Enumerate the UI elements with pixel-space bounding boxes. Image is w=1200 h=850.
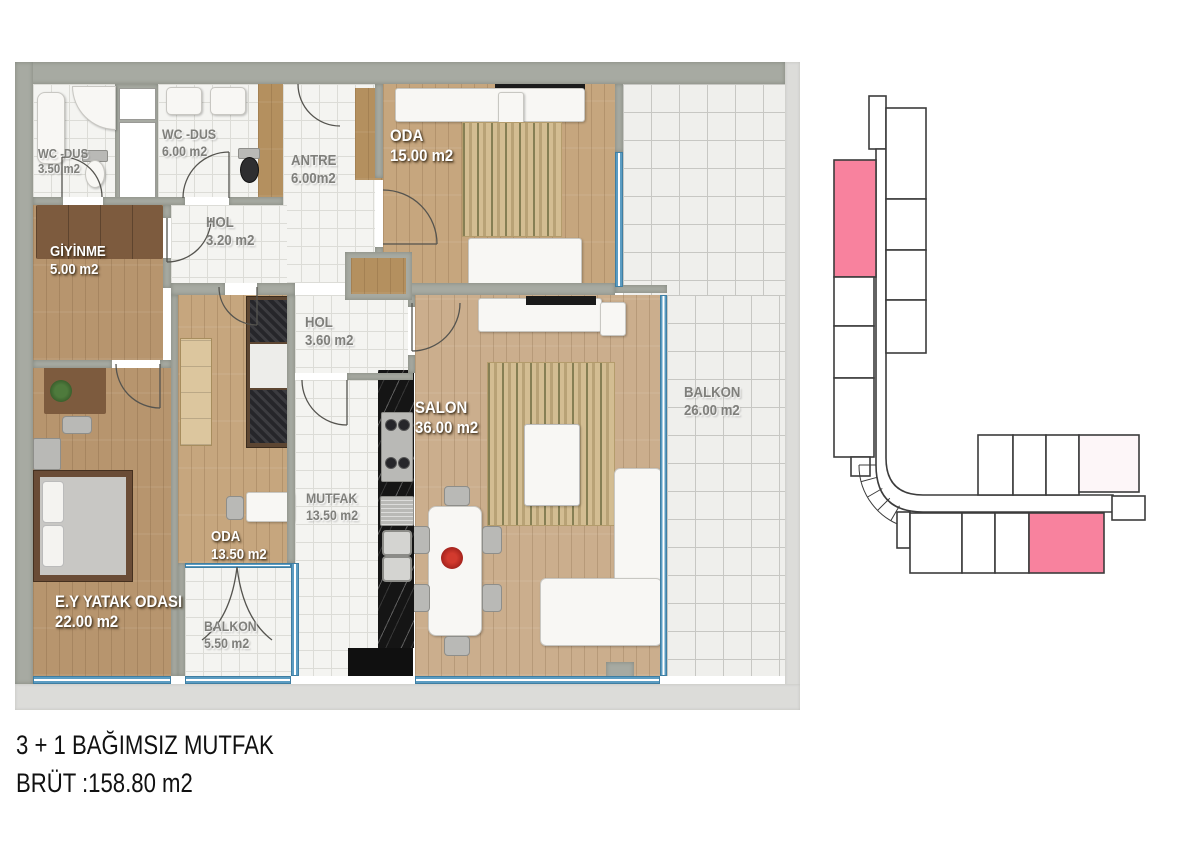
gross-area-label: BRÜT :158.80 m2: [16, 768, 193, 799]
room-name: ODA: [211, 528, 267, 546]
wall: [229, 197, 283, 205]
window: [660, 295, 667, 676]
unit: [834, 326, 874, 378]
room-label-balkon1: BALKON26.00 m2: [684, 384, 740, 419]
room-label-hol1: HOL3.20 m2: [206, 214, 254, 249]
unit: [834, 277, 874, 326]
highlighted-unit: [1029, 513, 1104, 573]
wall: [257, 283, 295, 295]
wall: [347, 373, 413, 380]
building-location-diagram: [834, 96, 1145, 573]
chair: [482, 584, 502, 612]
building-core: [876, 149, 1113, 512]
room-name: SALON: [415, 398, 478, 418]
wall: [287, 295, 295, 563]
room-label-wc1: WC -DUS3.50 m2: [38, 146, 88, 177]
room-name: HOL: [305, 314, 353, 332]
wall: [33, 360, 112, 368]
centerpiece: [441, 547, 463, 569]
room-name: E.Y YATAK ODASI: [55, 592, 182, 612]
apartment-type-label: 3 + 1 BAĞIMSIZ MUTFAK: [16, 730, 274, 761]
sofa: [540, 578, 662, 646]
wall: [171, 283, 225, 295]
sink: [166, 87, 202, 115]
unit: [886, 300, 926, 353]
wall: [383, 283, 615, 295]
kitchen-sink: [382, 530, 412, 556]
unit: [897, 512, 910, 548]
wall: [160, 360, 171, 368]
room-area: 13.50 m2: [211, 546, 267, 564]
terrace-edge: [785, 62, 800, 710]
kitchen-sink: [382, 556, 412, 582]
window: [291, 563, 299, 676]
unit: [1046, 435, 1079, 495]
unit: [978, 435, 1013, 495]
wall: [15, 62, 785, 84]
shaft-box: [119, 88, 156, 120]
wardrobe: [180, 338, 212, 446]
room-label-wc2: WC -DUS6.00 m2: [162, 126, 216, 159]
room-floor-balkon1-lower: [667, 295, 785, 676]
room-name: ODA: [390, 126, 453, 146]
wall: [15, 62, 33, 684]
room-area: 36.00 m2: [415, 418, 478, 438]
unit: [886, 108, 926, 199]
room-area: 15.00 m2: [390, 146, 453, 166]
room-label-giyinme: GİYİNME5.00 m2: [50, 243, 106, 278]
room-label-balkon2: BALKON5.50 m2: [204, 618, 257, 651]
room-label-antre: ANTRE6.00m2: [291, 152, 336, 187]
entry-cabinet: [258, 84, 283, 197]
room-name: GİYİNME: [50, 243, 106, 261]
boiler-unit: [498, 92, 524, 124]
unit: [995, 513, 1029, 573]
balcony-door-sill: [185, 563, 291, 568]
unit: [962, 513, 995, 573]
rug: [462, 122, 562, 237]
floor-plan-page: WC -DUS3.50 m2 WC -DUS6.00 m2 ANTRE6.00m…: [0, 0, 1200, 850]
room-area: 5.00 m2: [50, 261, 106, 279]
wall: [615, 84, 623, 152]
room-floor-balkon1-upper: [623, 84, 785, 295]
window: [415, 676, 660, 684]
plant: [50, 380, 72, 402]
terrace-edge: [15, 684, 800, 710]
dresser: [395, 88, 585, 122]
stove: [381, 412, 413, 482]
room-label-oda1: ODA15.00 m2: [390, 126, 453, 166]
sink: [210, 87, 246, 115]
wall: [375, 84, 383, 178]
unit: [1013, 435, 1046, 495]
room-area: 26.00 m2: [684, 402, 740, 420]
chair: [444, 486, 470, 506]
coffee-table: [524, 424, 580, 506]
dining-table: [428, 506, 482, 636]
chair: [444, 636, 470, 656]
highlighted-unit: [834, 160, 876, 277]
room-label-mutfak: MUTFAK13.50 m2: [306, 490, 358, 523]
chair: [482, 526, 502, 554]
room-name: BALKON: [684, 384, 740, 402]
room-area: 22.00 m2: [55, 612, 182, 632]
room-area: 13.50 m2: [306, 507, 358, 524]
sofa: [614, 468, 662, 584]
chair: [62, 416, 92, 434]
room-label-master: E.Y YATAK ODASI22.00 m2: [55, 592, 182, 632]
room-name: HOL: [206, 214, 254, 232]
shaft-box: [119, 122, 156, 200]
room-area: 3.60 m2: [305, 332, 353, 350]
window: [615, 152, 623, 287]
room-label-hol2: HOL3.60 m2: [305, 314, 353, 349]
room-floor-mutfak: [295, 380, 378, 676]
window: [33, 676, 171, 684]
wall: [103, 197, 185, 205]
room-name: MUTFAK: [306, 490, 358, 507]
room-area: 3.50 m2: [38, 161, 88, 176]
ac-unit: [33, 438, 61, 470]
room-name: BALKON: [204, 618, 257, 635]
chair: [226, 496, 244, 520]
room-label-oda2: ODA13.50 m2: [211, 528, 267, 563]
shaft-interior: [351, 258, 406, 294]
unit: [886, 250, 926, 300]
unit: [886, 199, 926, 250]
stairs-icon: [859, 465, 911, 527]
toilet: [240, 157, 259, 183]
wall: [408, 355, 415, 373]
wall: [163, 258, 171, 288]
room-area: 5.50 m2: [204, 635, 257, 652]
room-name: WC -DUS: [38, 146, 88, 161]
room-area: 6.00m2: [291, 170, 336, 188]
room-name: ANTRE: [291, 152, 336, 170]
balcony-rail: [185, 676, 291, 684]
wall: [163, 205, 171, 218]
room-area: 6.00 m2: [162, 143, 216, 160]
room-area: 3.20 m2: [206, 232, 254, 250]
drainboard: [380, 496, 414, 526]
unit: [869, 96, 886, 149]
wall: [33, 197, 63, 205]
unit: [851, 457, 870, 476]
unit: [1112, 496, 1145, 520]
double-bed: [33, 470, 133, 582]
unit: [910, 513, 962, 573]
unit: [834, 378, 874, 457]
room-name: WC -DUS: [162, 126, 216, 143]
kitchen-cabinet: [348, 648, 413, 676]
room-label-salon: SALON36.00 m2: [415, 398, 478, 438]
unit: [1079, 435, 1139, 492]
radiator: [600, 302, 626, 336]
tv: [526, 296, 596, 305]
